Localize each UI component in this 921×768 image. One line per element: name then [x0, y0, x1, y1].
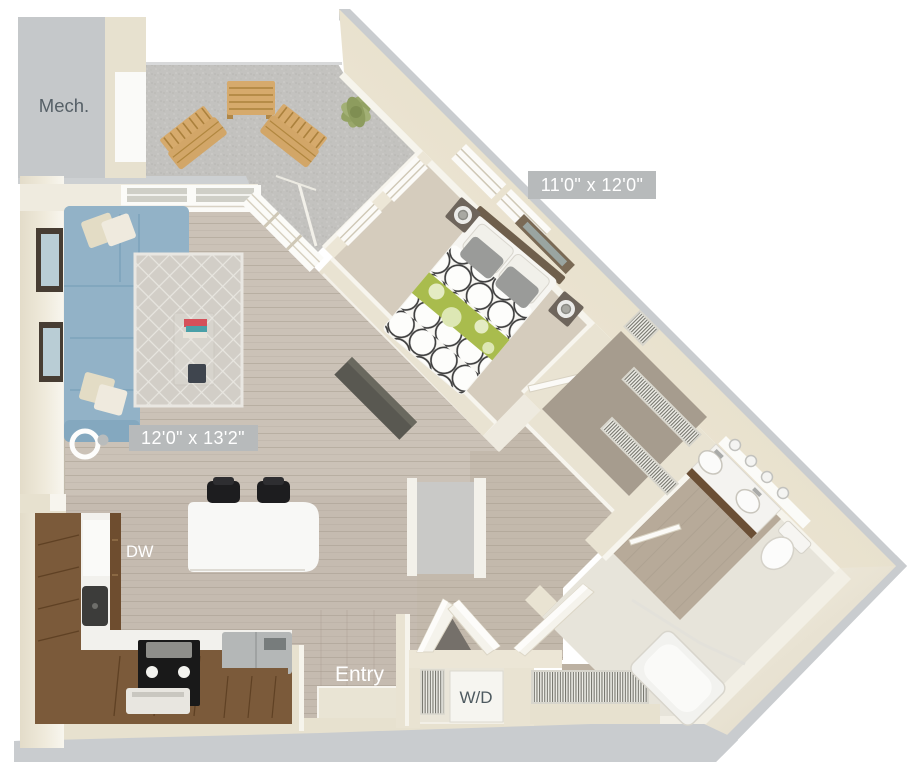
svg-text:11'0" x 12'0": 11'0" x 12'0"	[541, 175, 644, 195]
svg-text:Entry: Entry	[335, 663, 385, 686]
svg-text:DW: DW	[126, 543, 154, 561]
svg-text:W/D: W/D	[459, 688, 492, 707]
svg-text:12'0" x 13'2": 12'0" x 13'2"	[141, 428, 245, 448]
svg-text:Mech.: Mech.	[39, 95, 89, 116]
